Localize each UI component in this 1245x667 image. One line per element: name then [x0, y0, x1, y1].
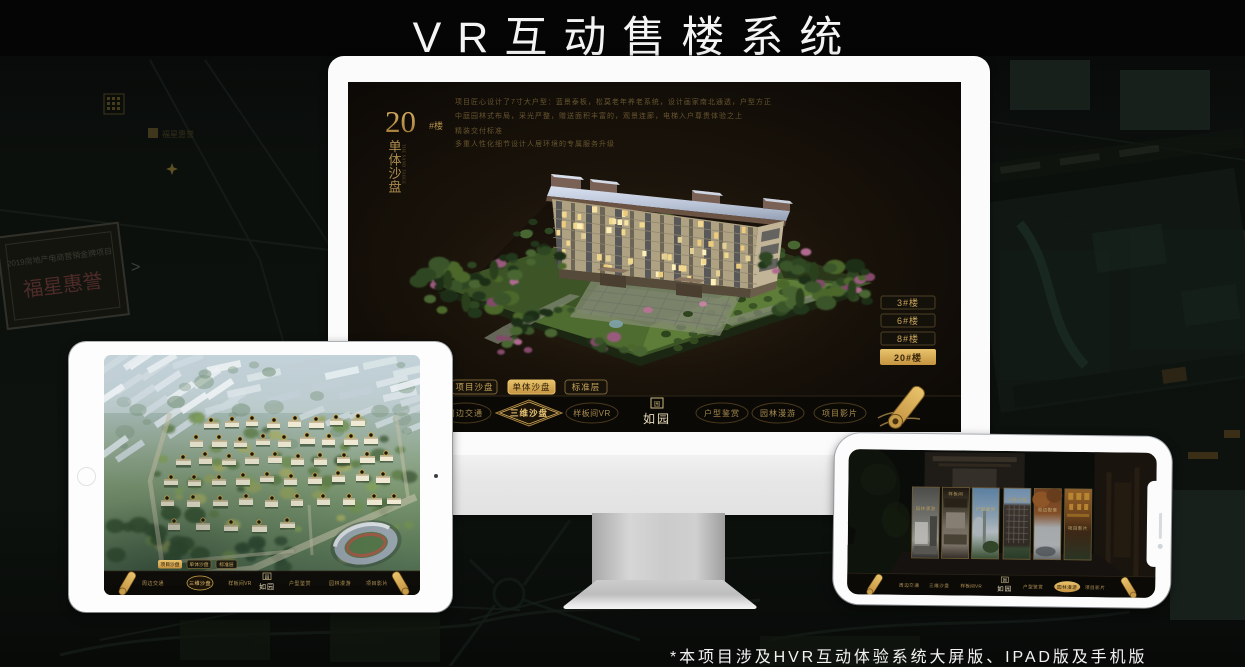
svg-text:项目影片: 项目影片	[822, 408, 858, 418]
svg-text:标准层: 标准层	[572, 382, 601, 392]
svg-text:如园: 如园	[643, 411, 671, 426]
svg-text:中庭园林式布局，采光严整，赠送面积丰富的，观景连廊，电梯入户: 中庭园林式布局，采光严整，赠送面积丰富的，观景连廊，电梯入户尊贵体验之上	[455, 111, 743, 120]
svg-text:户型鉴赏: 户型鉴赏	[289, 580, 311, 587]
svg-text:多重人性化细节设计人居环境的专属服务升级: 多重人性化细节设计人居环境的专属服务升级	[455, 139, 615, 148]
svg-text:园林漫游: 园林漫游	[760, 408, 796, 418]
svg-text:8#楼: 8#楼	[897, 333, 919, 344]
svg-text:项目沙盘: 项目沙盘	[160, 561, 179, 568]
svg-text:项目沙盘: 项目沙盘	[455, 382, 493, 392]
svg-text:盘: 盘	[388, 180, 401, 195]
svg-text:园: 园	[654, 401, 660, 408]
svg-text:6#楼: 6#楼	[897, 315, 919, 326]
svg-text:3#楼: 3#楼	[897, 297, 919, 308]
svg-text:如园: 如园	[259, 582, 275, 591]
svg-text:#楼: #楼	[429, 120, 443, 131]
svg-text:园: 园	[1003, 577, 1007, 583]
svg-text:三维沙盘: 三维沙盘	[510, 408, 548, 418]
svg-text:项目匠心设计了7寸大户型：蓝景泰板，松莫老年养老系统，设计画: 项目匠心设计了7寸大户型：蓝景泰板，松莫老年养老系统，设计画家南北通透，户型方正	[455, 97, 772, 106]
svg-text:THE SAND TABLE: THE SAND TABLE	[402, 144, 407, 184]
svg-text:福星惠誉: 福星惠誉	[162, 129, 194, 139]
svg-text:单体沙盘: 单体沙盘	[189, 561, 208, 568]
svg-text:>: >	[131, 259, 140, 276]
svg-text:样板间VR: 样板间VR	[573, 408, 611, 418]
svg-text:样板间VR: 样板间VR	[228, 580, 252, 587]
svg-text:20#楼: 20#楼	[894, 352, 922, 363]
svg-text:户型鉴赏: 户型鉴赏	[704, 408, 740, 418]
svg-text:精装交付标准: 精装交付标准	[455, 126, 503, 135]
svg-text:如园: 如园	[997, 584, 1012, 593]
svg-text:标准层: 标准层	[219, 561, 234, 568]
svg-text:三维沙盘: 三维沙盘	[189, 580, 211, 587]
svg-text:20: 20	[385, 104, 416, 139]
svg-text:周边交通: 周边交通	[142, 580, 164, 587]
svg-text:单体沙盘: 单体沙盘	[512, 382, 550, 392]
svg-text:园林漫游: 园林漫游	[329, 580, 351, 587]
svg-text:周边交通: 周边交通	[447, 408, 483, 418]
svg-text:项目影片: 项目影片	[366, 580, 388, 587]
